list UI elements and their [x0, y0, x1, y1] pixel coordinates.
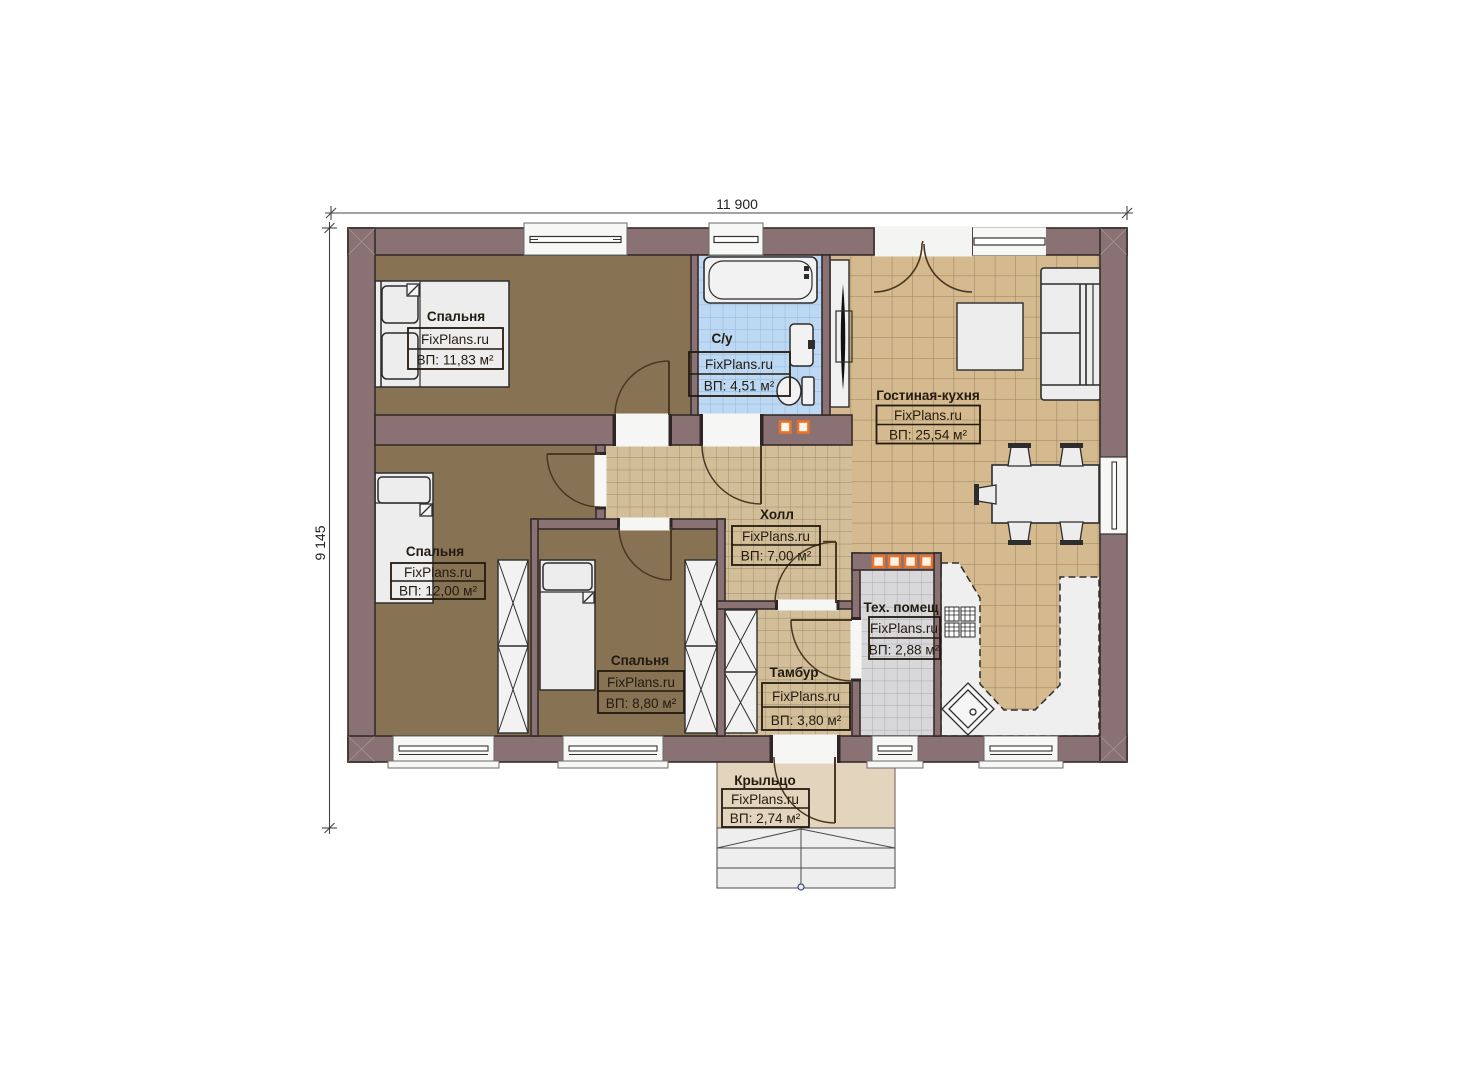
- svg-text:ВП: 12,00 м²: ВП: 12,00 м²: [399, 584, 478, 599]
- svg-text:ВП: 4,51 м²: ВП: 4,51 м²: [704, 379, 775, 394]
- svg-text:FixPlans.ru: FixPlans.ru: [772, 689, 840, 704]
- svg-text:FixPlans.ru: FixPlans.ru: [894, 408, 962, 423]
- svg-text:FixPlans.ru: FixPlans.ru: [705, 357, 773, 372]
- svg-text:ВП: 8,80 м²: ВП: 8,80 м²: [606, 696, 677, 711]
- svg-text:ВП: 25,54 м²: ВП: 25,54 м²: [889, 428, 968, 443]
- svg-text:ВП: 7,00 м²: ВП: 7,00 м²: [741, 549, 812, 564]
- svg-text:С/у: С/у: [711, 331, 733, 346]
- svg-text:Гостиная-кухня: Гостиная-кухня: [876, 388, 979, 403]
- svg-text:ВП: 11,83 м²: ВП: 11,83 м²: [416, 353, 494, 368]
- svg-text:Холл: Холл: [760, 507, 794, 522]
- svg-text:FixPlans.ru: FixPlans.ru: [742, 529, 810, 544]
- svg-text:Спальня: Спальня: [611, 653, 669, 668]
- svg-text:Тех. помещ: Тех. помещ: [863, 600, 939, 615]
- svg-text:FixPlans.ru: FixPlans.ru: [870, 621, 938, 636]
- svg-text:FixPlans.ru: FixPlans.ru: [607, 675, 675, 690]
- svg-text:Крыльцо: Крыльцо: [734, 773, 795, 788]
- svg-text:Тамбур: Тамбур: [770, 665, 819, 680]
- svg-text:ВП: 2,74 м²: ВП: 2,74 м²: [730, 811, 801, 826]
- svg-text:11 900: 11 900: [716, 196, 758, 212]
- svg-text:FixPlans.ru: FixPlans.ru: [731, 792, 799, 807]
- svg-text:ВП: 3,80 м²: ВП: 3,80 м²: [771, 713, 842, 728]
- svg-text:Спальня: Спальня: [427, 309, 485, 324]
- svg-text:9 145: 9 145: [312, 525, 328, 560]
- svg-text:FixPlans.ru: FixPlans.ru: [404, 565, 472, 580]
- svg-text:FixPlans.ru: FixPlans.ru: [421, 332, 489, 347]
- svg-text:Спальня: Спальня: [406, 544, 464, 559]
- svg-text:ВП: 2,88 м²: ВП: 2,88 м²: [869, 643, 940, 658]
